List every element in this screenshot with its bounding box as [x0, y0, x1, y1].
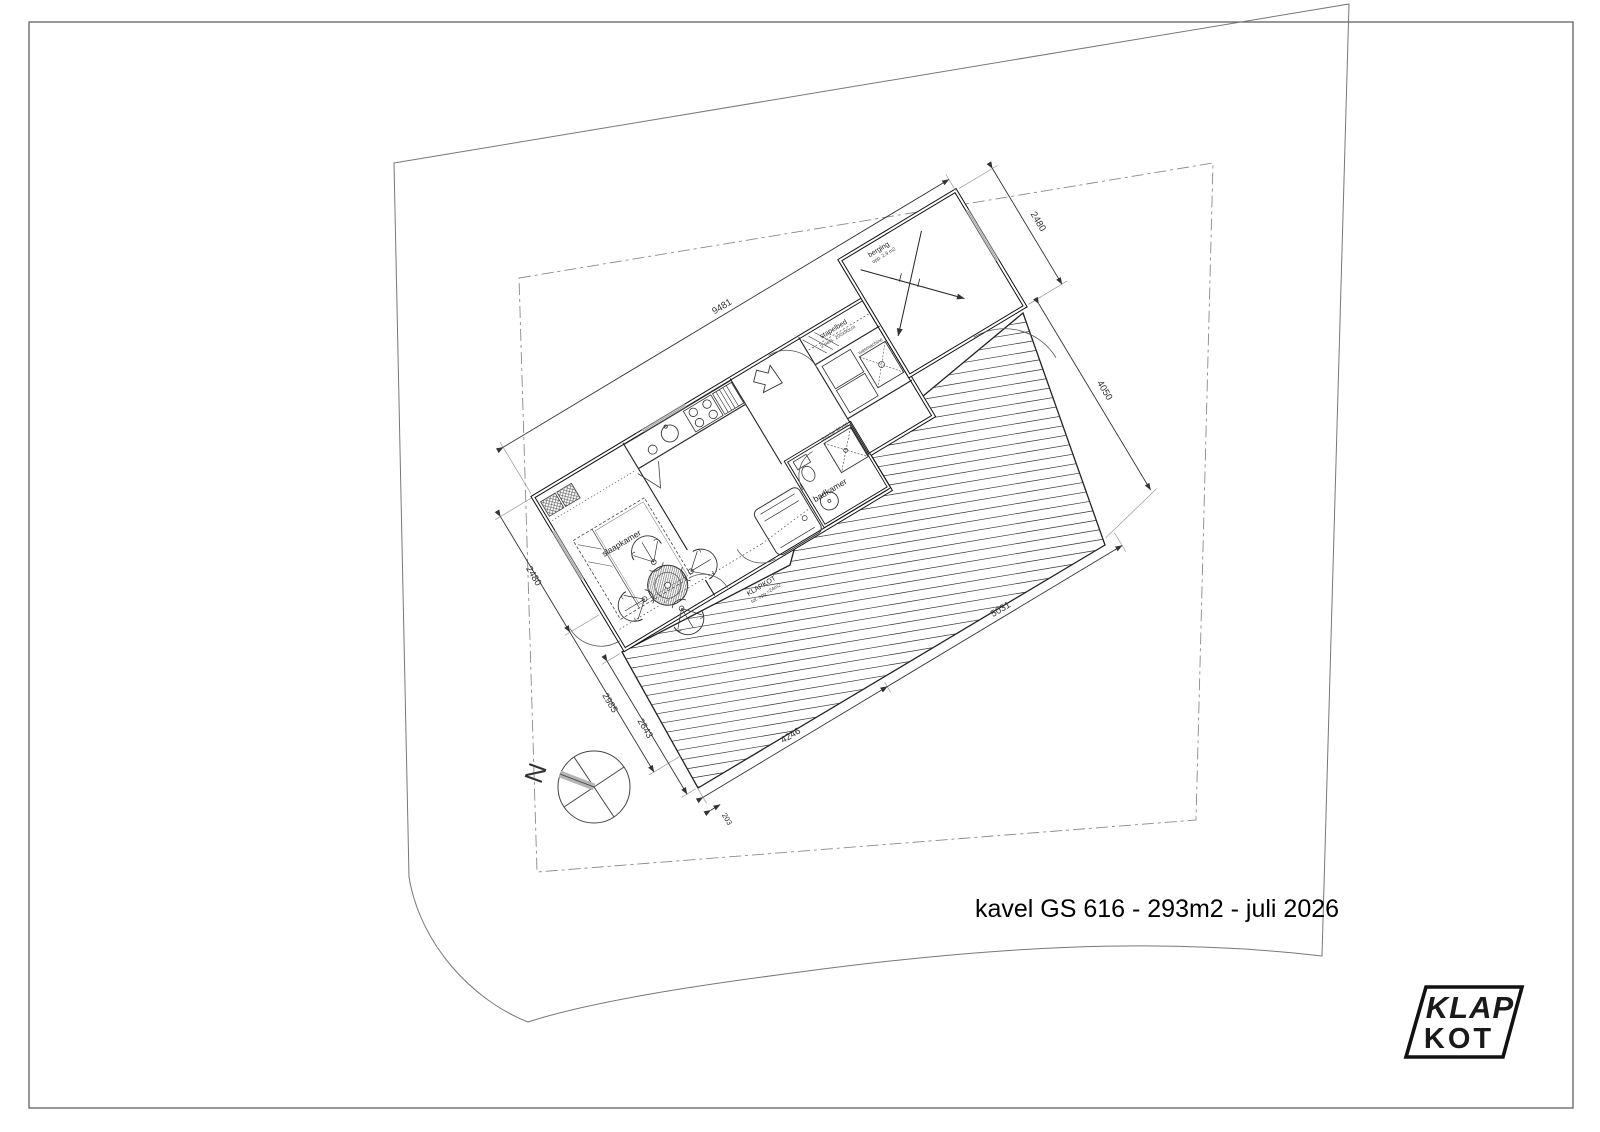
dim-left-lower: 2985 — [599, 691, 619, 715]
cabin-plan: slaapkamer badkamer stapelbed 2 pers. 20… — [457, 137, 1227, 848]
site-plan-drawing: slaapkamer badkamer stapelbed 2 pers. 20… — [0, 0, 1600, 1132]
logo-text-bottom: KOT — [1424, 1023, 1494, 1055]
dim-storage-width: 2480 — [1028, 210, 1048, 234]
north-label: N — [518, 759, 553, 787]
dim-top: 9481 — [710, 297, 734, 317]
dim-right: 4050 — [1094, 379, 1114, 403]
dim-deck-west: 2643 — [635, 717, 655, 741]
dim-left-upper: 2480 — [523, 564, 543, 588]
drawing-title: kavel GS 616 - 293m2 - juli 2026 — [975, 895, 1339, 923]
dim-deck-small: 203 — [720, 811, 734, 826]
logo-text-top: KLAP — [1426, 990, 1514, 1025]
klapkot-logo: KLAP KOT — [1406, 987, 1522, 1057]
